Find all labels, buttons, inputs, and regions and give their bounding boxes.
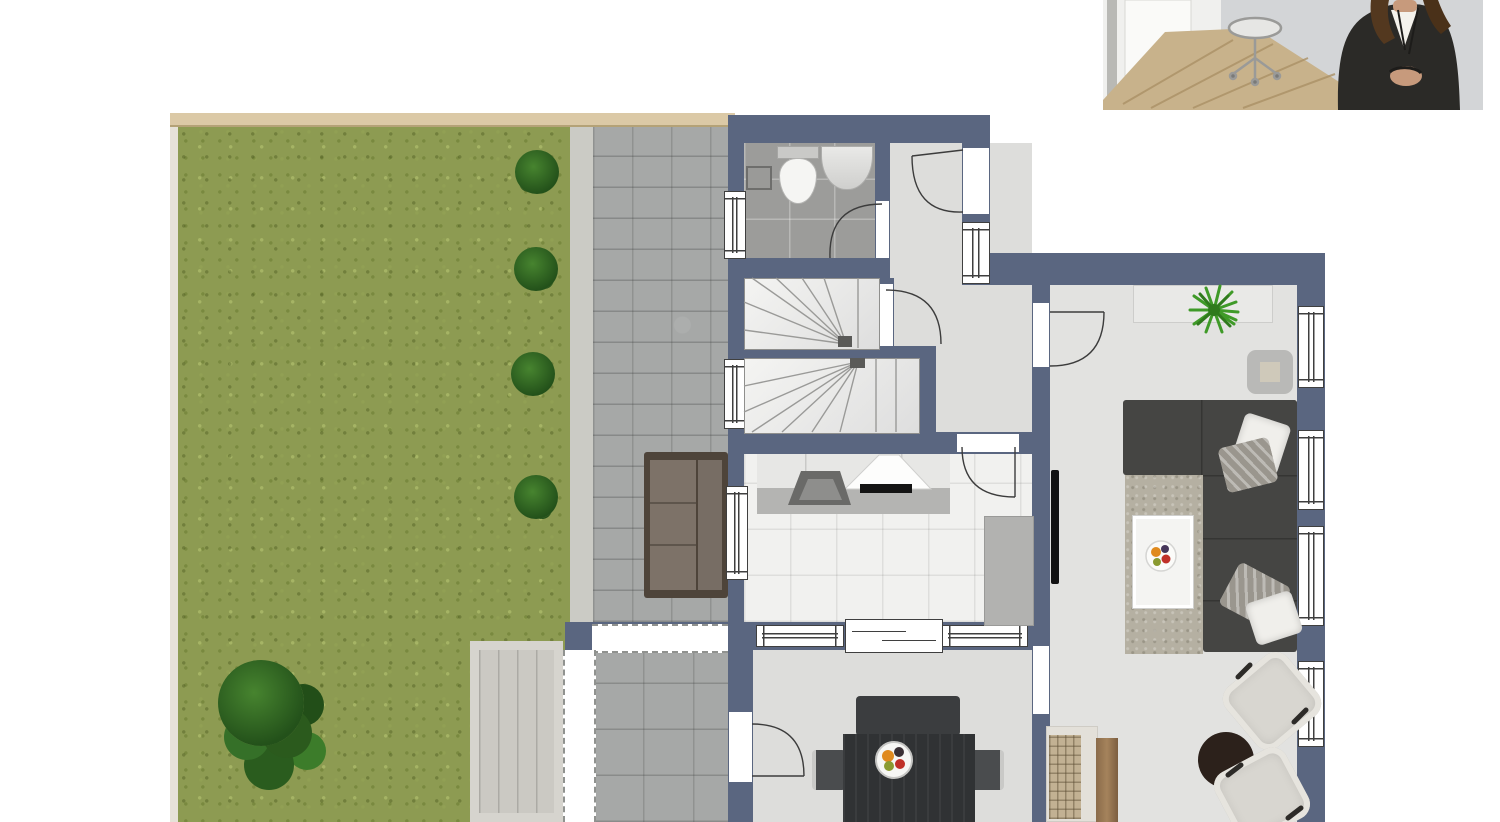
hall-window (962, 222, 990, 284)
bathroom-door-gap (876, 201, 889, 258)
wall-bath-bottom (728, 258, 890, 278)
tv (1051, 470, 1059, 584)
kitchen-side-window (726, 486, 748, 580)
garden-left-edge (170, 113, 178, 822)
stair-flight-upper (744, 278, 880, 350)
kitchen-bottom-window-1 (756, 625, 844, 647)
wall-table-top (1260, 362, 1280, 382)
large-shrub (218, 660, 304, 746)
hedge-bush (515, 150, 559, 194)
dining-chair-right (970, 750, 1004, 790)
kitchen-bottom-window-2 (942, 625, 1028, 647)
lowboard-wood-plank (1096, 738, 1118, 822)
overhang-outline-vertical (563, 650, 596, 822)
living-right-window-1 (1298, 306, 1324, 388)
dining-bench (856, 696, 960, 736)
garden-fence (170, 113, 735, 127)
lowboard (1046, 726, 1098, 822)
stair-flight-lower (744, 358, 920, 434)
dining-living-passage (1033, 646, 1049, 714)
kitchen-upper-cabinets (757, 454, 950, 488)
wall-top-bath-hall (728, 115, 990, 143)
outdoor-sofa-backrest (698, 460, 722, 590)
terrace-pavers (593, 650, 740, 822)
wall-table (1247, 350, 1293, 394)
bath-wall-cabinet (746, 166, 772, 190)
stair-door-gap (879, 284, 893, 346)
floor-plan-page (0, 0, 1500, 822)
entrance-door-gap (963, 148, 989, 214)
dining-chair-left (812, 750, 846, 790)
outdoor-sofa (644, 452, 728, 598)
lowboard-basket-texture (1049, 735, 1081, 819)
hedge-bush (514, 475, 558, 519)
wall-living-top (962, 253, 1325, 285)
living-sideboard (1133, 285, 1273, 323)
outdoor-sofa-seats (650, 460, 696, 590)
agent-photo (1103, 0, 1483, 110)
overhang-outline-horizontal (592, 624, 728, 653)
wall-stair-right (918, 358, 936, 434)
bathroom-window (724, 191, 746, 259)
kitchen-appliance-block (984, 516, 1034, 626)
living-door-gap (1033, 303, 1049, 367)
living-right-window-2 (1298, 430, 1324, 510)
living-right-window-3 (1298, 526, 1324, 626)
deck-steps (470, 641, 563, 822)
hedge-bush (514, 247, 558, 291)
dining-table (843, 734, 975, 822)
kitchen-counter (757, 488, 950, 514)
kitchen-terrace-slider-door (845, 619, 943, 653)
kitchen-door-gap (957, 434, 1019, 452)
terrace-door-gap (729, 712, 752, 782)
coffee-table (1133, 516, 1193, 608)
stairs-window (724, 359, 746, 429)
hedge-bush (511, 352, 555, 396)
